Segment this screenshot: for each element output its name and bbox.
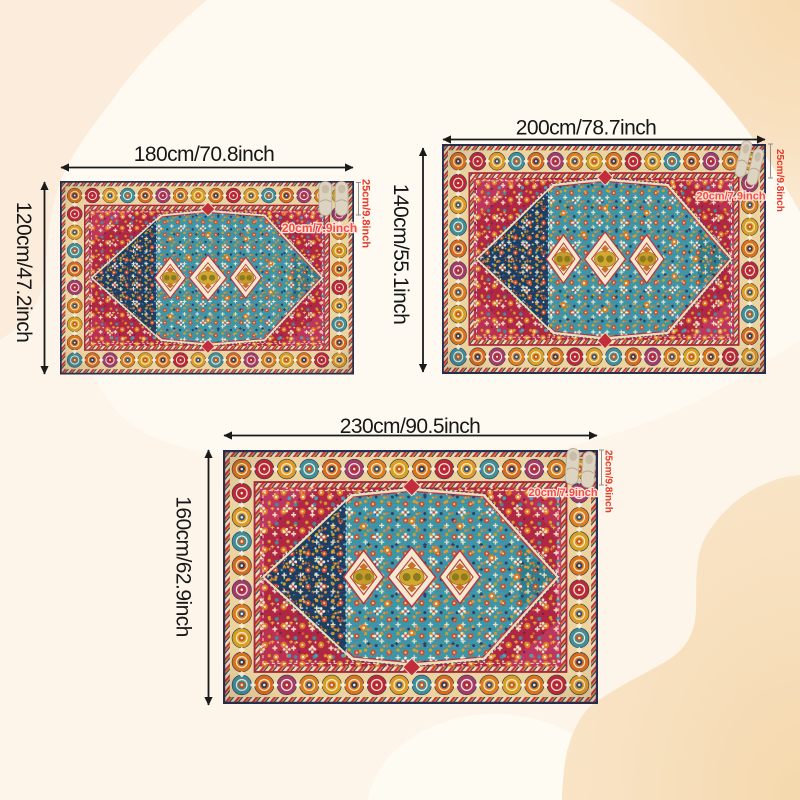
svg-text:25cm/9.8inch: 25cm/9.8inch — [774, 149, 785, 212]
svg-text:180cm/70.8inch: 180cm/70.8inch — [134, 143, 275, 166]
svg-text:20cm/7.9inch: 20cm/7.9inch — [528, 487, 597, 499]
svg-text:20cm/7.9inch: 20cm/7.9inch — [282, 221, 357, 235]
svg-text:25cm/9.8inch: 25cm/9.8inch — [360, 179, 372, 248]
svg-text:20cm/7.9inch: 20cm/7.9inch — [696, 191, 765, 203]
svg-text:140cm/55.1inch: 140cm/55.1inch — [389, 184, 412, 325]
svg-text:160cm/62.9inch: 160cm/62.9inch — [172, 496, 195, 637]
svg-text:25cm/9.8inch: 25cm/9.8inch — [603, 450, 614, 513]
svg-text:230cm/90.5inch: 230cm/90.5inch — [340, 415, 481, 438]
svg-text:120cm/47.2inch: 120cm/47.2inch — [12, 202, 35, 343]
svg-text:200cm/78.7inch: 200cm/78.7inch — [516, 117, 657, 140]
